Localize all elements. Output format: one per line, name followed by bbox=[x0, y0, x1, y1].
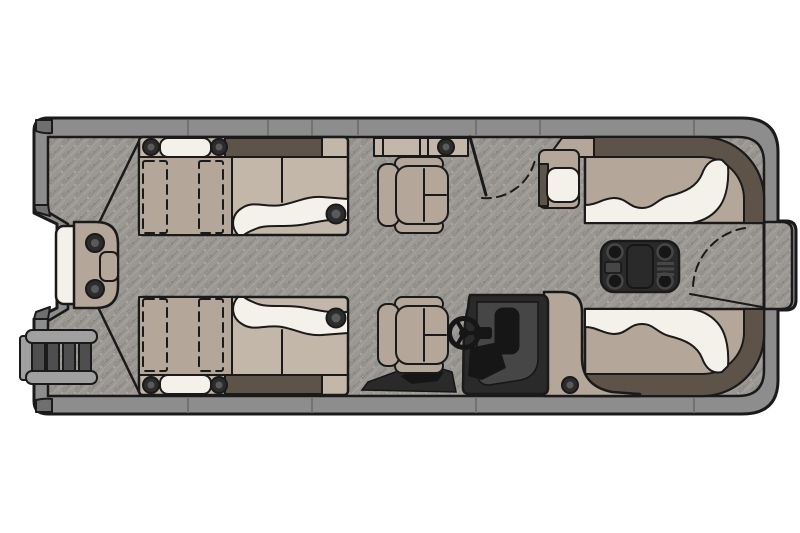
pontoon-floorplan-page bbox=[0, 0, 800, 533]
lounge-headrest-pillow bbox=[160, 138, 211, 157]
ladder-rail-top bbox=[26, 330, 97, 343]
stern-lounge-top bbox=[585, 137, 764, 223]
stern-table bbox=[601, 241, 679, 292]
lounge-bolt bbox=[143, 377, 159, 393]
side-console-cupholder bbox=[438, 139, 454, 155]
bow-gate-bolt bbox=[86, 234, 104, 252]
pontoon-floorplan-diagram bbox=[0, 0, 800, 533]
helm-chair bbox=[378, 297, 448, 373]
captain-chair-top bbox=[378, 157, 448, 233]
lounge-cushion bbox=[139, 297, 232, 375]
lounge-bolt bbox=[211, 139, 227, 155]
lounge-bolt bbox=[211, 377, 227, 393]
helm-wrap-cupholder bbox=[562, 377, 578, 393]
lounge-cupholder bbox=[327, 309, 346, 328]
table-center-insert bbox=[627, 245, 653, 288]
ladder-step-block bbox=[32, 341, 45, 374]
bow-ladder bbox=[20, 330, 97, 384]
lounge-cushion bbox=[139, 157, 232, 235]
bow-lounge-bottom bbox=[139, 297, 348, 395]
ladder-rail-bottom bbox=[26, 371, 97, 384]
stern-lounge-bottom bbox=[585, 309, 764, 396]
table-speaker-grille bbox=[657, 262, 674, 276]
lounge-backrest-panel bbox=[225, 138, 322, 157]
lounge-backrest-panel bbox=[225, 375, 322, 394]
lounge-bolt bbox=[143, 139, 159, 155]
lounge-headrest-pillow bbox=[160, 375, 211, 394]
bow-gate-latch bbox=[100, 252, 118, 281]
table-cupholder bbox=[658, 245, 673, 260]
bow-corner-cap-top bbox=[36, 120, 52, 133]
bow-lounge-top bbox=[139, 137, 348, 235]
table-cupholder bbox=[608, 245, 623, 260]
bow-gate-seat bbox=[56, 222, 118, 308]
bow-gate-bolt bbox=[86, 280, 104, 298]
table-side-tray bbox=[605, 262, 621, 273]
bow-notch-cap-lower bbox=[34, 307, 50, 319]
arm-console-lid bbox=[547, 168, 579, 202]
side-console-top bbox=[374, 138, 468, 156]
table-cupholder bbox=[608, 274, 623, 289]
bow-corner-cap-bottom bbox=[36, 399, 52, 412]
lounge-cupholder bbox=[327, 205, 346, 224]
